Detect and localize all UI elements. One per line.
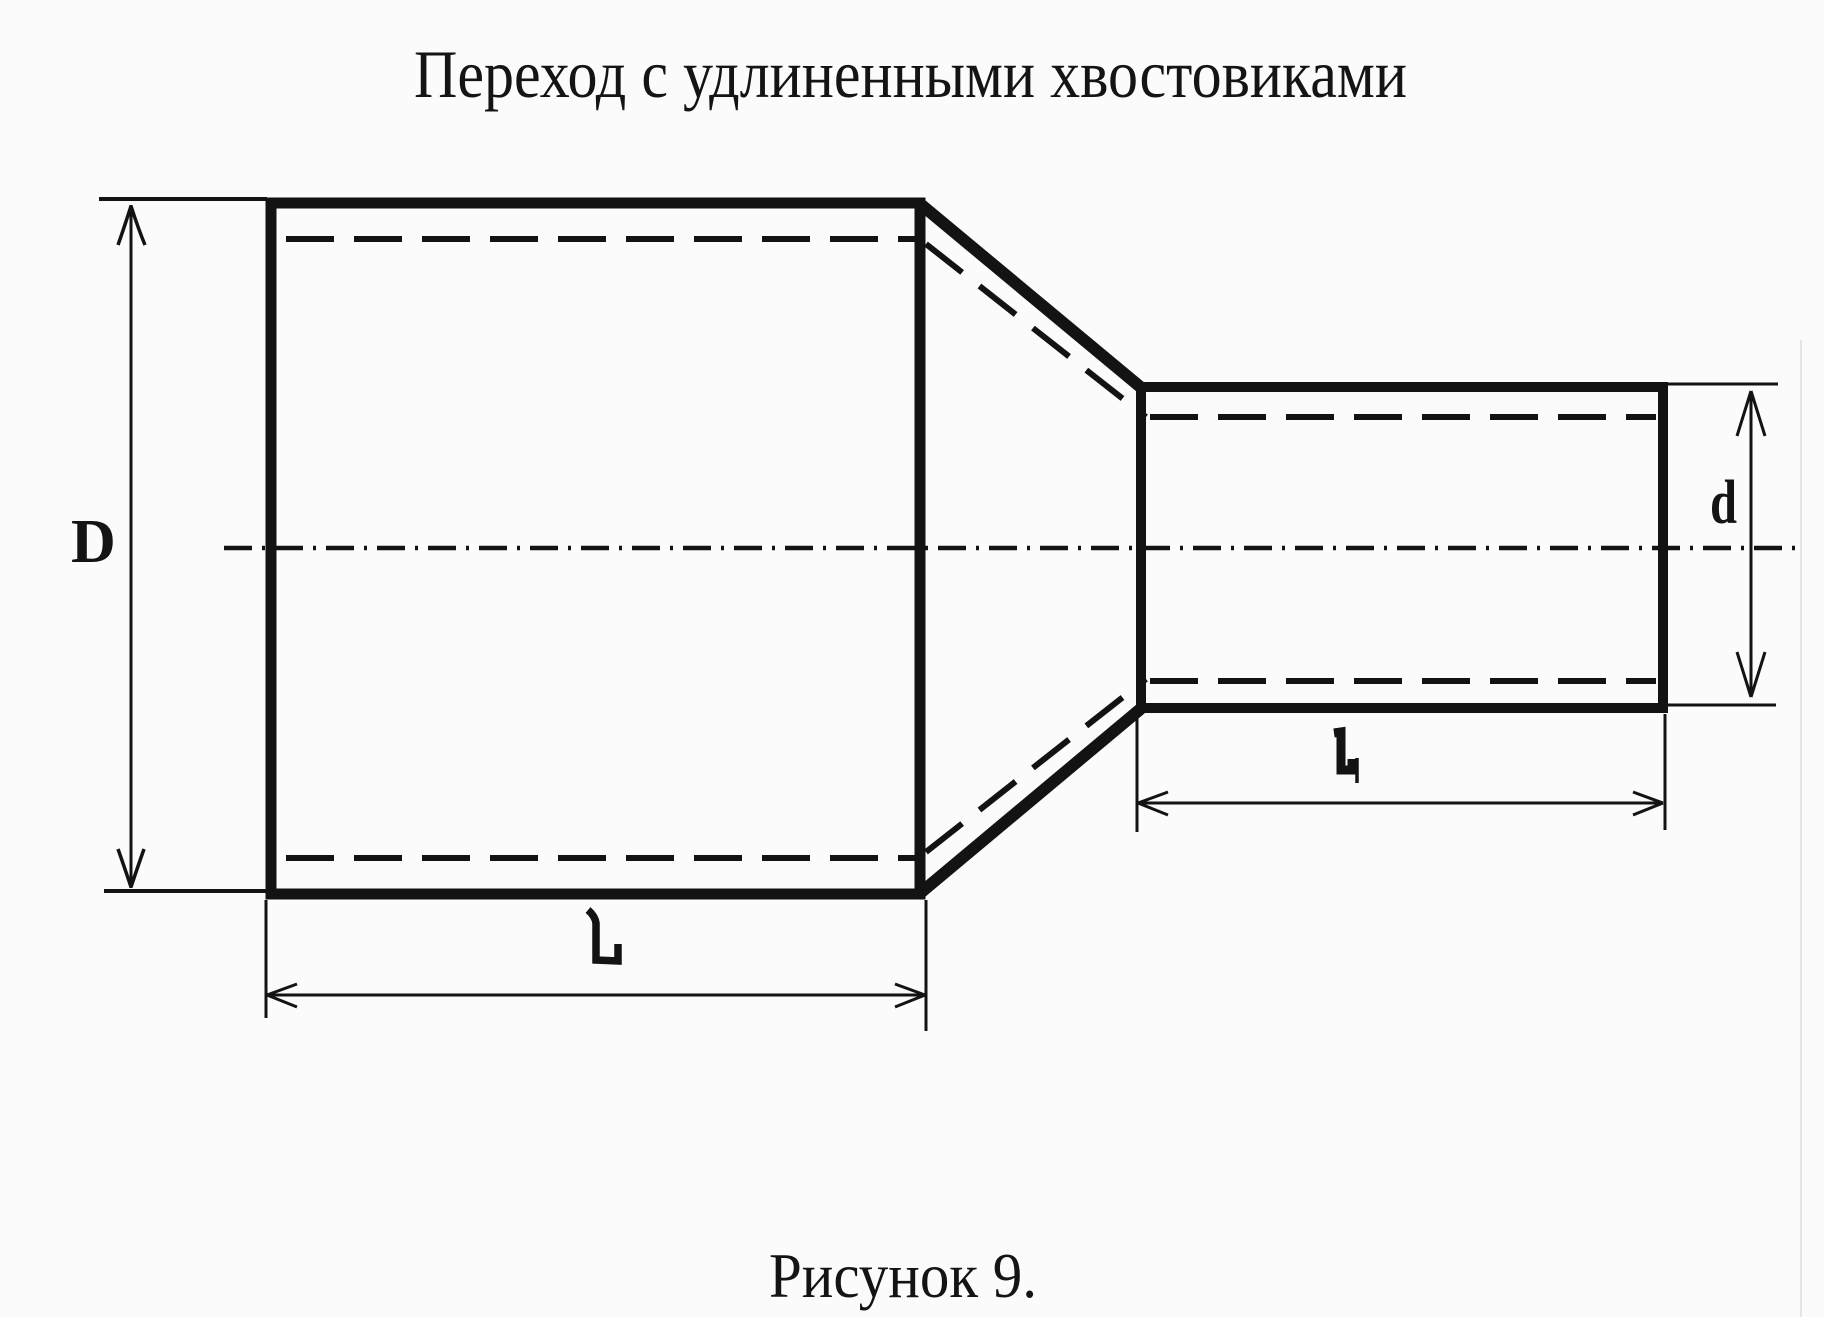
svg-text:D: D bbox=[71, 508, 116, 576]
svg-text:Рисунок 9.: Рисунок 9. bbox=[769, 1240, 1037, 1311]
svg-text:Переход с удлиненными хвостови: Переход с удлиненными хвостовиками bbox=[414, 36, 1407, 112]
svg-text:d: d bbox=[1710, 469, 1737, 537]
